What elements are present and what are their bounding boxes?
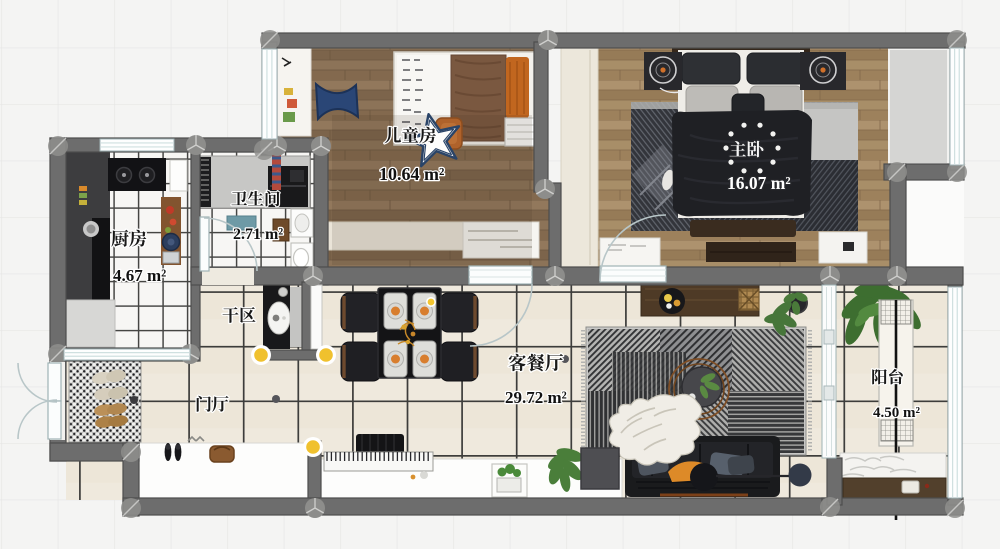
svg-text:2.71 m²: 2.71 m²: [233, 226, 283, 243]
svg-text:4.67 m²: 4.67 m²: [113, 266, 166, 285]
svg-text:10.64 m²: 10.64 m²: [379, 164, 444, 184]
svg-text:16.07 m²: 16.07 m²: [727, 173, 791, 193]
svg-text:29.72 m²: 29.72 m²: [505, 388, 567, 407]
svg-text:4.50 m²: 4.50 m²: [873, 405, 920, 421]
